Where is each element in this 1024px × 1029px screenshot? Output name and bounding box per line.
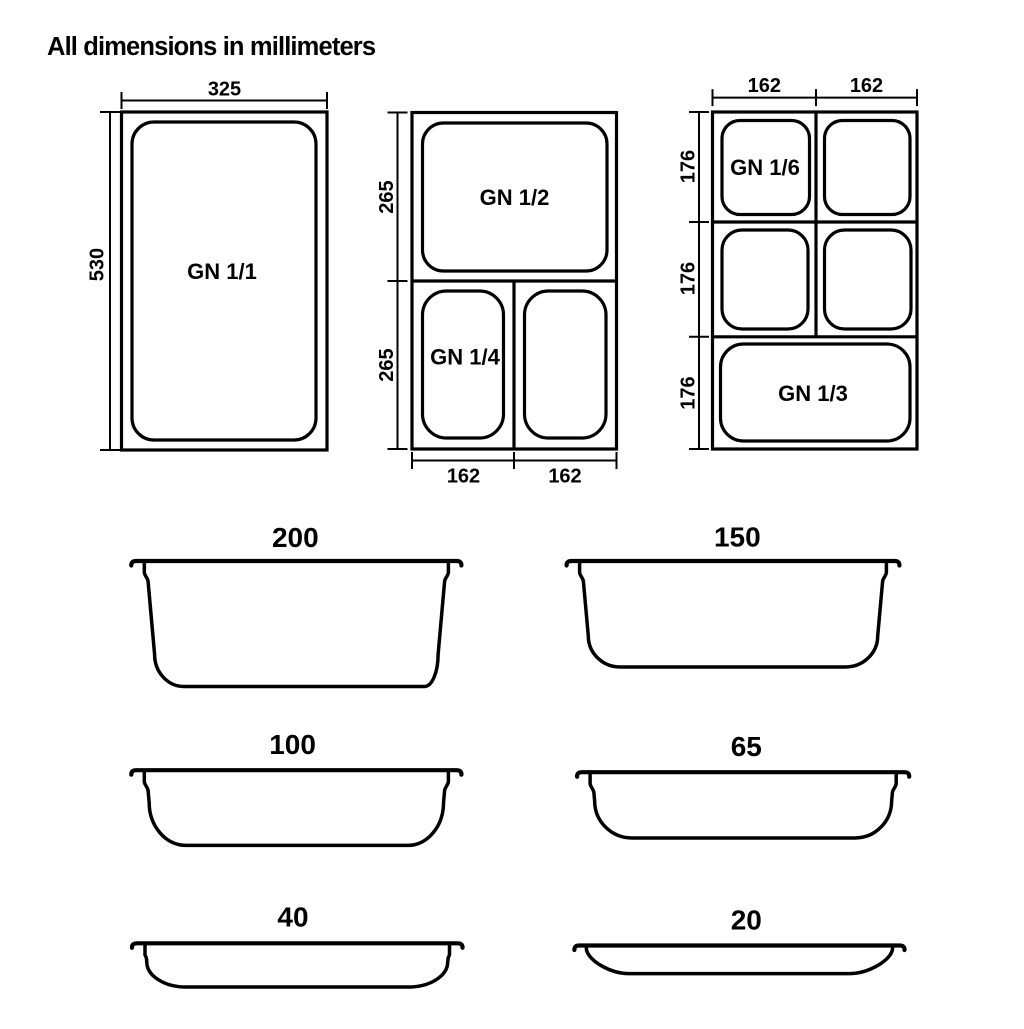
- svg-text:All dimensions in millimeters: All dimensions in millimeters: [47, 33, 376, 61]
- svg-text:176: 176: [677, 262, 699, 295]
- svg-text:GN 1/6: GN 1/6: [730, 155, 800, 180]
- svg-text:176: 176: [677, 376, 699, 409]
- svg-text:100: 100: [269, 729, 316, 760]
- svg-text:162: 162: [548, 466, 581, 488]
- svg-text:200: 200: [272, 522, 319, 553]
- svg-text:162: 162: [748, 75, 781, 97]
- svg-text:265: 265: [376, 348, 398, 381]
- svg-text:GN 1/1: GN 1/1: [187, 259, 257, 284]
- svg-text:GN 1/4: GN 1/4: [430, 345, 500, 370]
- svg-text:40: 40: [277, 902, 308, 933]
- svg-text:162: 162: [850, 75, 883, 97]
- svg-text:265: 265: [376, 180, 398, 213]
- svg-text:GN 1/2: GN 1/2: [480, 185, 550, 210]
- svg-text:20: 20: [731, 904, 762, 935]
- svg-text:65: 65: [731, 731, 762, 762]
- svg-text:162: 162: [447, 466, 480, 488]
- svg-text:530: 530: [86, 248, 108, 281]
- svg-text:325: 325: [208, 79, 241, 101]
- svg-text:GN 1/3: GN 1/3: [778, 381, 848, 406]
- svg-text:150: 150: [714, 522, 761, 553]
- svg-text:176: 176: [677, 150, 699, 183]
